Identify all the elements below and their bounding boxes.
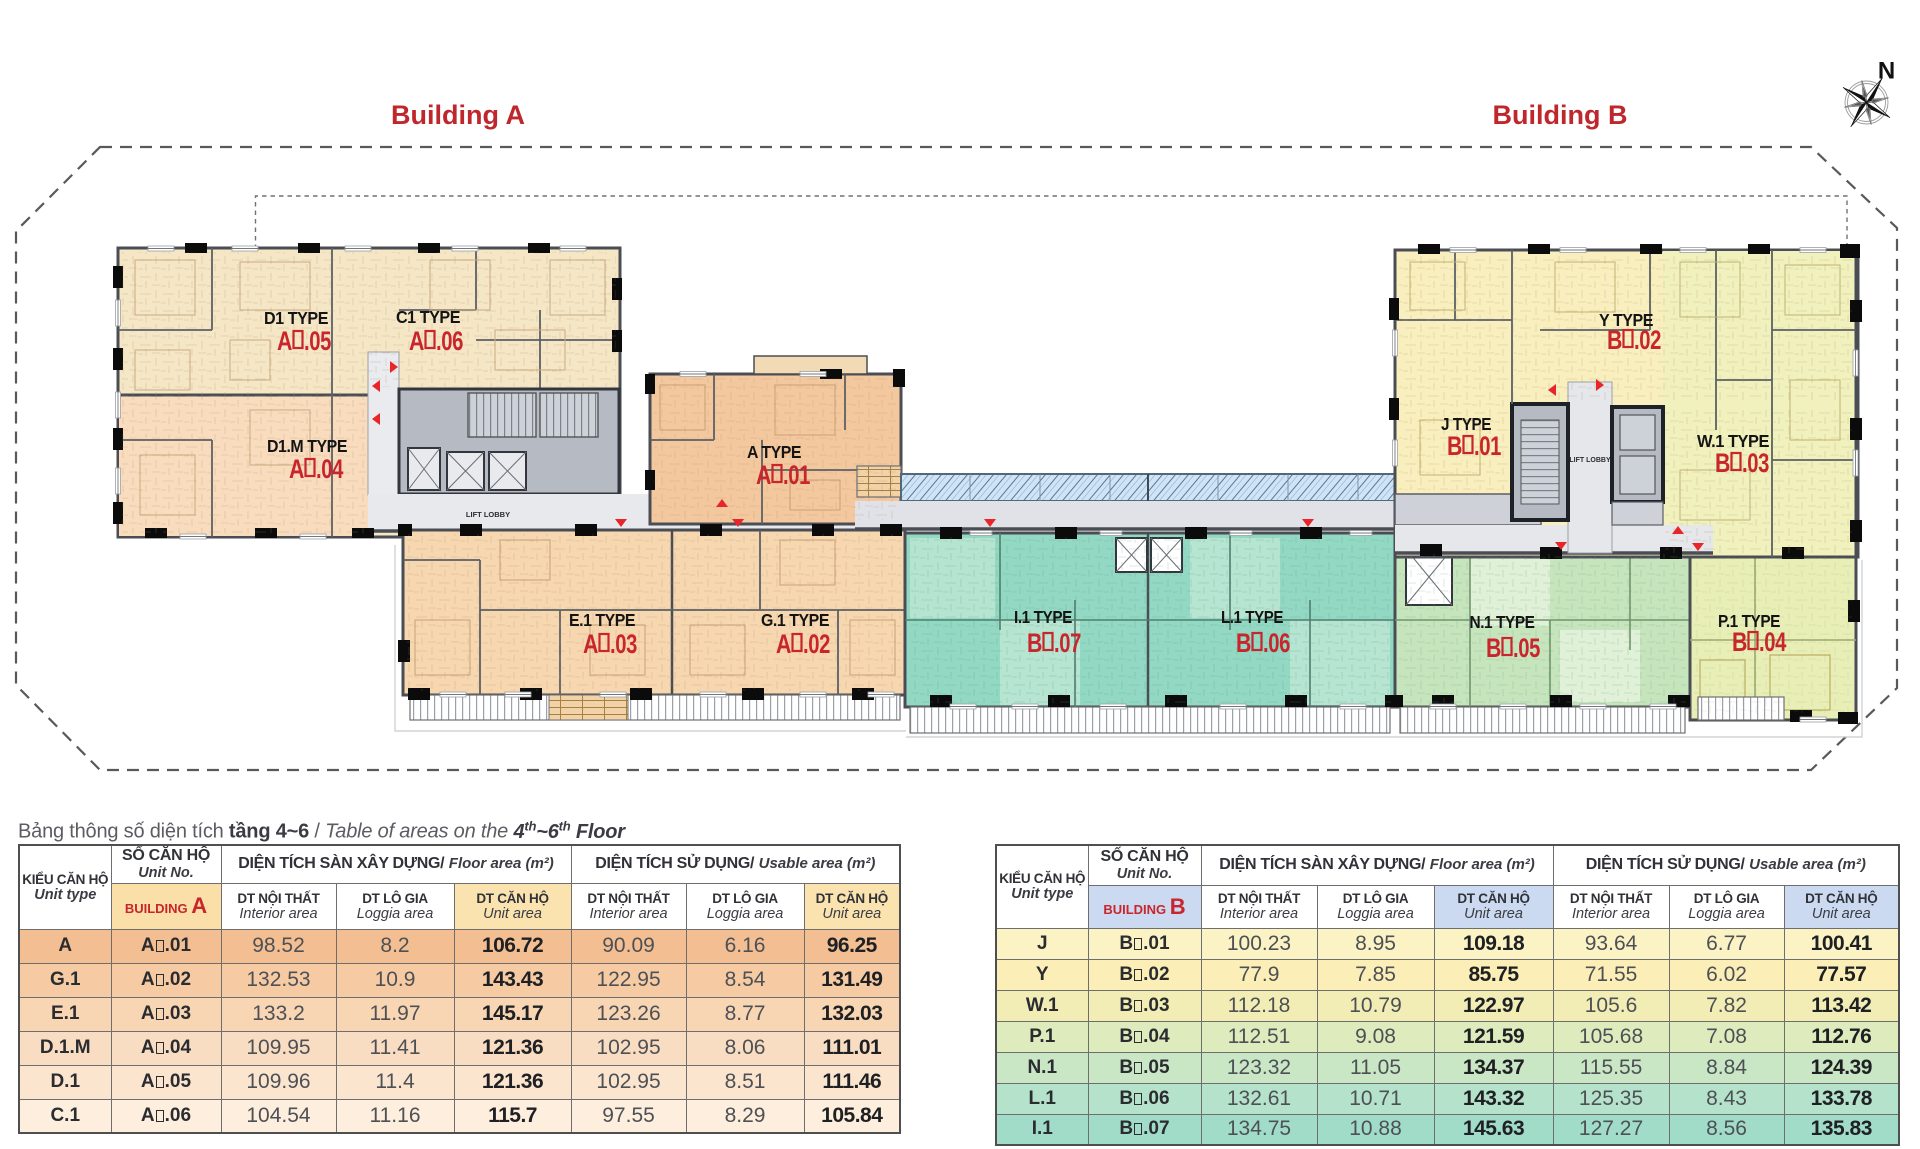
svg-text:A: A xyxy=(756,460,771,490)
svg-text:B: B xyxy=(1027,628,1042,658)
svg-text:N: N xyxy=(1878,58,1895,85)
svg-text:I.1 TYPE: I.1 TYPE xyxy=(1014,607,1072,627)
svg-text:B: B xyxy=(1732,627,1747,657)
svg-text:A: A xyxy=(289,454,304,484)
svg-text:B: B xyxy=(1236,628,1251,658)
svg-text:.02: .02 xyxy=(803,629,830,659)
svg-text:D1 TYPE: D1 TYPE xyxy=(264,308,328,328)
svg-text:.06: .06 xyxy=(1263,628,1290,658)
svg-text:.07: .07 xyxy=(1054,628,1081,658)
svg-text:.01: .01 xyxy=(1474,431,1501,461)
svg-text:.04: .04 xyxy=(316,454,343,484)
svg-text:A: A xyxy=(277,326,292,356)
svg-text:B: B xyxy=(1715,448,1730,478)
svg-text:.06: .06 xyxy=(436,326,463,356)
svg-text:A: A xyxy=(776,629,791,659)
svg-text:G.1 TYPE: G.1 TYPE xyxy=(761,610,829,630)
svg-text:B: B xyxy=(1447,431,1462,461)
svg-text:A: A xyxy=(583,629,598,659)
svg-text:.03: .03 xyxy=(1742,448,1769,478)
svg-text:B: B xyxy=(1607,325,1622,355)
svg-text:A: A xyxy=(409,326,424,356)
svg-text:.03: .03 xyxy=(610,629,637,659)
svg-text:.05: .05 xyxy=(304,326,331,356)
svg-text:.04: .04 xyxy=(1759,627,1786,657)
svg-text:LIFT LOBBY: LIFT LOBBY xyxy=(466,510,510,519)
svg-text:A TYPE: A TYPE xyxy=(747,442,801,462)
svg-text:Building A: Building A xyxy=(391,100,525,130)
svg-text:L.1 TYPE: L.1 TYPE xyxy=(1221,607,1283,627)
svg-text:.01: .01 xyxy=(783,460,810,490)
svg-text:.05: .05 xyxy=(1513,633,1540,663)
svg-text:Building B: Building B xyxy=(1493,100,1628,130)
svg-text:B: B xyxy=(1486,633,1501,663)
svg-text:C1 TYPE: C1 TYPE xyxy=(396,307,460,327)
svg-text:.02: .02 xyxy=(1634,325,1661,355)
svg-text:N.1 TYPE: N.1 TYPE xyxy=(1470,612,1535,632)
svg-text:D1.M TYPE: D1.M TYPE xyxy=(267,436,347,456)
svg-text:LIFT LOBBY: LIFT LOBBY xyxy=(1569,457,1611,464)
svg-text:E.1 TYPE: E.1 TYPE xyxy=(569,610,635,630)
